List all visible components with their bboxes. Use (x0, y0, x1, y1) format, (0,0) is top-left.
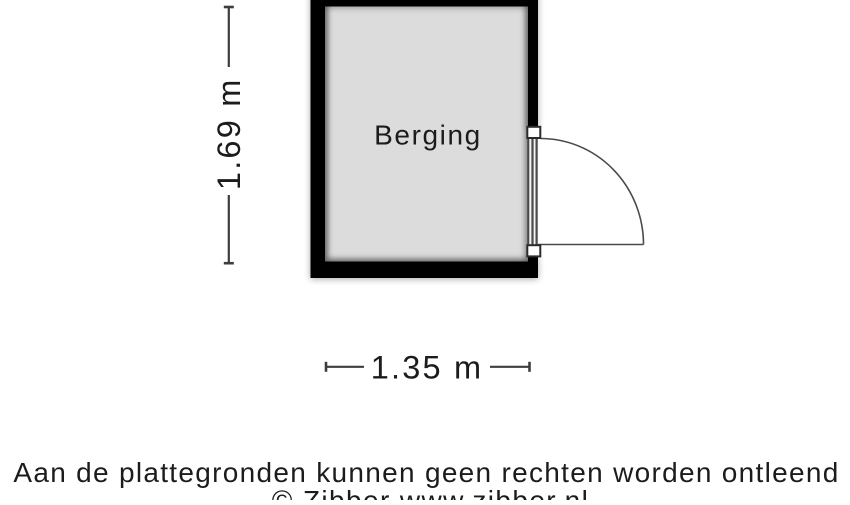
svg-text:Berging: Berging (374, 120, 482, 151)
svg-text:1.35 m: 1.35 m (371, 350, 484, 386)
svg-text:Aan de plattegronden kunnen ge: Aan de plattegronden kunnen geen rechten… (13, 457, 839, 488)
svg-text:© Zibber www.zibber.nl: © Zibber www.zibber.nl (272, 485, 590, 500)
svg-text:1.69 m: 1.69 m (211, 78, 247, 191)
